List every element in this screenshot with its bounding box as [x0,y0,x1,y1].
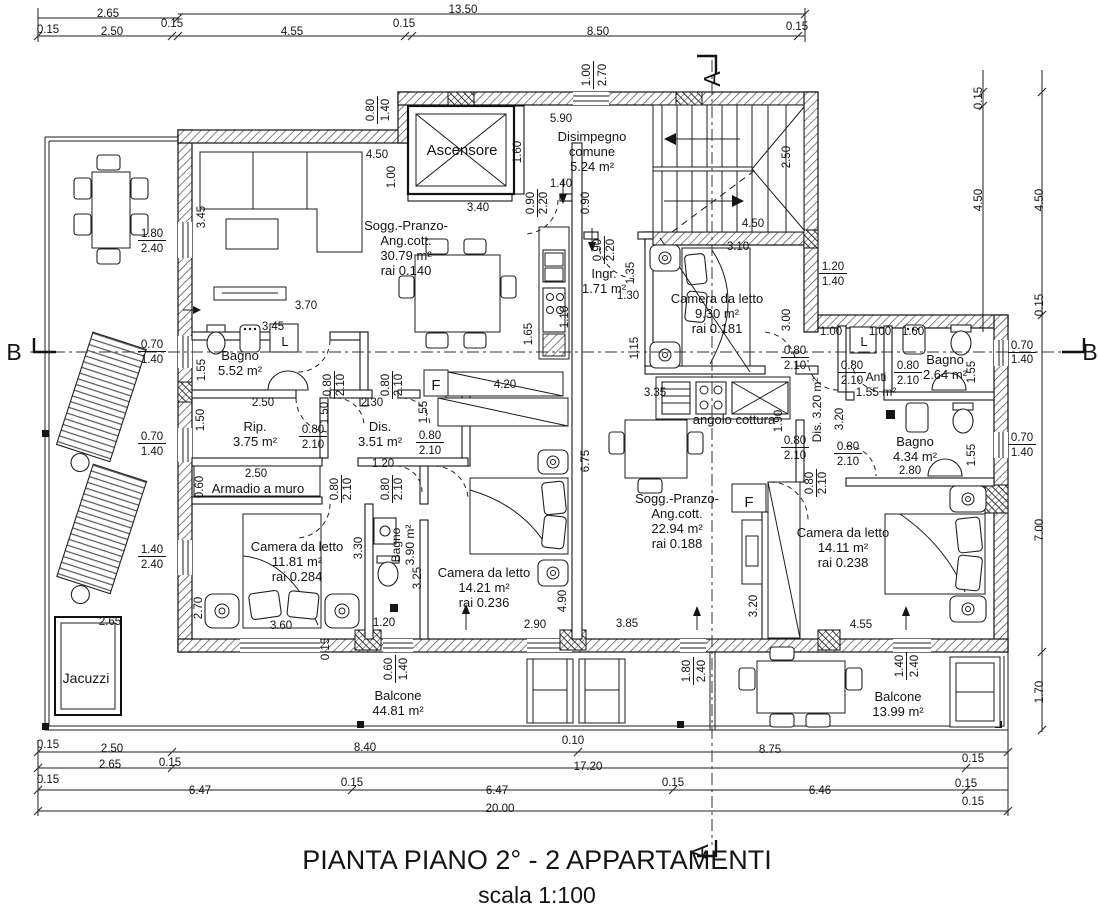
dimension-text: 2.10 [342,478,354,500]
dimension-label: 2.20 [605,239,617,261]
dimension-label: 1.70 [1034,681,1046,703]
dimension-label: 1.40 [141,446,163,458]
dimension-label: 1.00 [869,326,891,338]
dimension-label: 4.50 [366,149,388,161]
room-label-line: rai 0.181 [692,321,743,336]
room-label-line: Ang.cott. [651,506,702,521]
dimension-text: 0.80 [784,345,806,357]
dimension-label: 1.40 [550,178,572,190]
dimension-label: 3.85 [616,618,638,630]
dimension-text: 1.00 [386,166,398,188]
dimension-label: 0.80 [329,475,342,503]
dimension-label: 4.50 [973,189,985,211]
dimension-text: 0.60 [383,658,395,680]
dimension-text: 0.80 [322,374,334,396]
dimension-label: 0.80 [380,475,393,503]
dimension-label: 0.70 [138,339,166,352]
label-frigo-apt2: F [744,494,753,511]
dimension-label: 0.15 [320,638,332,660]
dimension-label: 1.00 [581,61,594,89]
dimension-text: 1.40 [141,354,163,366]
dimension-text: 2.90 [524,619,546,631]
dimension-text: 0.60 [194,476,206,498]
dimension-label: 1.40 [1011,354,1033,366]
dimension-text: 3.25 [412,567,424,589]
dimension-text: 2.40 [141,243,163,255]
dimension-label: 2.50 [245,468,267,480]
dimension-label: 2.40 [141,243,163,255]
dimension-text: 2.50 [101,743,123,755]
dimension-label: 2.10 [897,375,919,387]
dimension-label: 2.40 [909,655,921,677]
dimension-label: 6.46 [809,785,831,797]
dimension-label: 2.70 [193,597,205,619]
dimension-text: 3.85 [616,618,638,630]
section-marker-letter: B [6,339,21,365]
dimension-text: 0.15 [393,18,415,30]
room-label-line: 3.51 m² [358,434,403,449]
dimension-label: 3.20 [834,408,846,430]
dimension-text: 2.10 [784,450,806,462]
dimension-text: 0.80 [365,99,377,121]
dimension-label: 1.40 [138,544,166,557]
dimension-label: 2.10 [419,445,441,457]
room-label-line: 14.11 m² [818,540,869,555]
dimension-label: 3.45 [196,206,208,228]
dimension-text: 0.80 [419,430,441,442]
room-label-line: Sogg.-Pranzo- [364,218,448,233]
dimension-label: 2.10 [335,374,347,396]
dimension-label: 2.10 [817,472,829,494]
dimension-label: 1.55 [418,401,430,423]
dimension-label: 0.15 [1034,294,1046,316]
dimension-label: 1.50 [319,402,331,424]
dimension-text: 0.15 [973,87,985,109]
dimension-text: 0.90 [525,192,537,214]
dimension-text: 3.45 [196,206,208,228]
dimension-label: 2.10 [393,374,405,396]
dimension-label: 3.00 [781,309,793,331]
dimension-text: 1.80 [141,228,163,240]
room-label-line: L [281,334,288,349]
room-bagno-264: Bagno2.64 m² [923,352,968,382]
dimension-label: 1.15 [629,337,641,359]
dimension-label: 1.80 [138,228,166,241]
dimension-label: 0.15 [159,757,181,769]
dimension-label: 2.10 [302,439,324,451]
dimension-text: 1.15 [629,337,641,359]
dimension-label: 1.40 [398,658,410,680]
dimension-text: 4.50 [1034,189,1046,211]
room-label-line: 44.81 m² [372,703,424,718]
dimension-text: 1.50 [319,402,331,424]
dimension-text: 1.40 [1011,354,1033,366]
dimension-label: 1.40 [1011,447,1033,459]
dimension-text: 1.40 [141,544,163,556]
dimension-text: 1.00 [869,326,891,338]
dimension-text: 1.20 [373,617,395,629]
room-label-line: rai 0.238 [818,555,869,570]
dimension-label: 0.15 [37,24,59,36]
dimension-label: 2.40 [141,559,163,571]
section-marker-letter: B [1082,339,1097,365]
dimension-label: 8.75 [759,744,781,756]
label-lavatrice-apt1: L [281,334,288,349]
room-label-line: Bagno [221,348,259,363]
room-label-line: Bagno [896,434,934,449]
dimension-text: 0.15 [37,739,59,751]
room-label-line: Anti [866,370,887,384]
room-label-line: 2.64 m² [923,367,968,382]
dimension-label: 1.20 [373,617,395,629]
room-label-line: Bagno [389,527,403,562]
dimension-label: 0.90 [580,192,592,214]
dimension-label: 0.70 [138,431,166,444]
room-label-line: 11.81 m² [272,554,323,569]
room-bagno-552: Bagno5.52 m² [218,348,263,378]
dimension-text: 0.15 [161,18,183,30]
dimension-text: 2.40 [696,660,708,682]
dimension-label: 2.50 [252,397,274,409]
dimension-text: 1.55 [966,444,978,466]
dimension-label: 2.50 [101,26,123,38]
dimension-label: 0.80 [834,441,862,454]
dimension-text: 0.15 [962,753,984,765]
room-label-line: 5.52 m² [218,363,263,378]
dimension-label: 1.20 [372,458,394,470]
dimension-text: 2.80 [899,465,921,477]
dimension-text: 1.40 [398,658,410,680]
dimension-text: 2.10 [393,478,405,500]
dimension-label: 1.40 [894,652,907,680]
dimension-text: 8.50 [587,26,609,38]
dimension-label: 0.60 [383,655,396,683]
dimension-text: 1.20 [372,458,394,470]
dimension-text: 3.10 [727,241,749,253]
dimension-text: 1.40 [822,276,844,288]
room-label-line: 13.99 m² [872,704,924,719]
dimension-text: 1.10 [559,306,571,328]
dimension-label: 0.80 [838,360,866,373]
dimension-text: 1.70 [1034,681,1046,703]
dimension-label: 2.10 [784,360,806,372]
room-label-line: 1.71 m² [582,281,627,296]
room-label-line: rai 0.140 [381,263,432,278]
dimension-text: 1.65 [523,323,535,345]
label-lavatrice-apt2: L [860,334,867,349]
dimension-label: 0.80 [781,345,809,358]
room-label-line: 30.79 m² [380,248,432,263]
dimension-label: 1.65 [523,323,535,345]
dimension-label: 2.50 [101,743,123,755]
room-jacuzzi: Jacuzzi [63,670,110,686]
room-label-line: Sogg.-Pranzo- [635,491,719,506]
dimension-label: 0.80 [894,360,922,373]
dimension-text: 0.70 [141,339,163,351]
dimension-label: 0.15 [662,777,684,789]
dimension-label: 0.15 [962,753,984,765]
dimension-label: 3.25 [412,567,424,589]
dimension-label: 1.60 [902,326,924,338]
dimension-text: 1.00 [820,326,842,338]
dimension-text: 4.90 [557,590,569,612]
dimension-text: 2.65 [99,759,121,771]
dimension-label: 0.80 [781,435,809,448]
dimension-text: 17.20 [574,761,603,773]
room-dis-320: Dis. 3.20 m² [810,378,824,443]
dimension-text: 1.55 [966,361,978,383]
room-camera-1411: Camera da letto14.11 m²rai 0.238 [797,525,890,570]
dimension-label: 2.30 [361,397,383,409]
dimension-label: 1.20 [819,261,847,274]
dimension-label: 2.80 [899,465,921,477]
room-ascensore: Ascensore [427,142,498,159]
dimension-text: 0.80 [841,360,863,372]
dimension-label: 8.40 [354,742,376,754]
room-label-line: rai 0.284 [272,569,323,584]
room-label-line: F [431,377,440,394]
dimension-label: 6.47 [486,785,508,797]
room-label-line: Camera da letto [438,565,531,580]
dimension-text: 1.20 [822,261,844,273]
dimension-text: 4.55 [850,619,872,631]
dimension-text: 3.40 [467,202,489,214]
dimension-label: 0.80 [380,371,393,399]
room-label-line: rai 0.236 [459,595,510,610]
dimension-text: 3.70 [295,300,317,312]
room-label-line: 4.34 m² [893,449,938,464]
dimension-text: 2.65 [97,8,119,20]
room-label-line: Ang.cott. [380,233,431,248]
dimension-text: 4.50 [973,189,985,211]
dimension-label: 2.10 [784,450,806,462]
dimension-label: 0.15 [393,18,415,30]
dimension-text: 1.35 [625,262,637,284]
dimension-text: 4.50 [366,149,388,161]
dimension-text: 3.35 [644,387,666,399]
room-label-line: Camera da letto [671,291,764,306]
room-balcone-4481: Balcone44.81 m² [372,688,424,718]
dimension-label: 1.10 [559,306,571,328]
dimension-label: 1.00 [820,326,842,338]
dimension-text: 4.20 [494,379,516,391]
dimension-text: 0.15 [662,777,684,789]
room-rip: Rip.3.75 m² [233,419,278,449]
room-balcone-1399: Balcone13.99 m² [872,689,924,719]
room-label-line: F [744,494,753,511]
dimension-label: 0.90 [525,189,538,217]
dimension-label: 0.60 [194,476,206,498]
room-label-line: Armadio a muro [212,481,304,496]
room-label-line: L [860,334,867,349]
dimension-text: 0.70 [141,431,163,443]
dimension-label: 0.15 [973,87,985,109]
dimension-text: 1.40 [380,99,392,121]
dimension-text: 2.30 [361,397,383,409]
dimension-label: 4.20 [494,379,516,391]
room-label-line: 3.75 m² [233,434,278,449]
dimension-label: 0.15 [341,777,363,789]
dimension-text: 2.70 [597,64,609,86]
dimension-text: 0.15 [962,796,984,808]
room-label-line: 1.55 m² [856,385,897,399]
dimension-text: 0.15 [320,638,332,660]
room-label-line: Balcone [375,688,422,703]
section-marker-b: B [6,339,21,365]
dimension-text: 6.47 [486,785,508,797]
dimension-text: 1.60 [902,326,924,338]
kitchen-apt1 [539,227,569,359]
dimension-text: 1.55 [418,401,430,423]
dimension-label: 1.00 [386,166,398,188]
room-camera-1421: Camera da letto14.21 m²rai 0.236 [438,565,531,610]
dimension-label: 1.60 [512,141,524,163]
dimension-text: 2.40 [909,655,921,677]
section-marker-a: A [699,71,725,87]
dimension-label: 5.90 [550,113,572,125]
dimension-text: 3.00 [781,309,793,331]
dimension-label: 8.50 [587,26,609,38]
dimension-text: 2.65 [99,616,121,628]
room-label-line: comune [569,144,615,159]
room-bagno-390: Bagno3.90 m² [389,525,417,566]
dimension-text: 2.50 [252,397,274,409]
dimension-text: 0.15 [955,778,977,790]
dimension-text: 2.20 [605,239,617,261]
dimension-label: 2.70 [597,64,609,86]
dimension-label: 0.80 [416,430,444,443]
dimension-text: 8.40 [354,742,376,754]
dimension-label: 2.10 [342,478,354,500]
dimension-text: 0.80 [380,478,392,500]
dimension-text: 6.46 [809,785,831,797]
dimension-text: 2.70 [193,597,205,619]
dimension-label: 1.55 [966,361,978,383]
dimension-label: 3.70 [295,300,317,312]
dimension-label: 0.80 [299,424,327,437]
dimension-text: 0.80 [804,472,816,494]
dimension-text: 1.55 [196,359,208,381]
dimension-text: 1.50 [195,409,207,431]
section-marker-letter: A [699,71,725,87]
dimension-text: 3.20 [834,408,846,430]
dimension-label: 2.40 [696,660,708,682]
dimension-label: 17.20 [574,761,603,773]
dimension-text: 0.80 [302,424,324,436]
dimension-text: 3.45 [262,321,284,333]
dimension-label: 13.50 [449,4,478,16]
room-label-line: angolo cottura [693,412,776,427]
dimension-text: 1.80 [681,660,693,682]
dimension-text: 0.70 [1011,340,1033,352]
dimension-text: 3.20 [748,595,760,617]
dimension-text: 0.80 [784,435,806,447]
dimension-label: 3.10 [727,241,749,253]
dimension-text: 0.90 [592,239,604,261]
room-label-line: Jacuzzi [63,670,110,686]
room-label-line: 5.24 m² [570,159,615,174]
dimension-text: 2.10 [817,472,829,494]
dimension-text: 0.80 [897,360,919,372]
dimension-text: 1.40 [894,655,906,677]
dimension-label: 1.80 [681,657,694,685]
dimension-text: 0.80 [329,478,341,500]
dimension-label: 0.10 [562,735,584,747]
room-disimpegno-comune: Disimpegnocomune5.24 m² [558,129,627,174]
dimension-text: 2.50 [245,468,267,480]
label-frigo-apt1: F [431,377,440,394]
drawing-title: PIANTA PIANO 2° - 2 APPARTAMENTI [302,845,771,875]
room-label-line: 3.90 m² [403,525,417,566]
dimension-label: 3.45 [262,321,284,333]
dimension-label: 7.00 [1034,519,1046,541]
dimension-label: 0.15 [962,796,984,808]
floor-plan-page: 2.6513.500.152.500.154.550.158.500.151.0… [0,0,1098,914]
dimension-text: 7.00 [1034,519,1046,541]
section-marker-b: B [1082,339,1097,365]
dimension-text: 1.40 [550,178,572,190]
dimension-text: 0.15 [37,774,59,786]
dimension-text: 2.50 [101,26,123,38]
dimension-text: 13.50 [449,4,478,16]
dimension-label: 6.47 [189,785,211,797]
dimension-label: 0.80 [804,469,817,497]
dimension-text: 2.10 [837,456,859,468]
room-label-line: Bagno [926,352,964,367]
dimension-label: 1.55 [966,444,978,466]
room-label-line: Disimpegno [558,129,627,144]
room-label-line: 14.21 m² [458,580,510,595]
room-ingresso: Ingr.1.71 m² [582,266,627,296]
dimension-text: 2.10 [419,445,441,457]
dimension-text: 1.40 [141,446,163,458]
dimension-text: 0.15 [786,21,808,33]
dimension-label: 0.80 [322,371,335,399]
room-label-line: Camera da letto [797,525,890,540]
dimension-text: 0.90 [580,192,592,214]
dimension-label: 1.40 [822,276,844,288]
dimension-label: 3.60 [270,620,292,632]
dimension-label: 0.15 [37,774,59,786]
dimension-label: 0.70 [1008,340,1036,353]
room-label-line: 22.94 m² [651,521,703,536]
dimension-label: 2.90 [524,619,546,631]
room-label-line: rai 0.188 [652,536,703,551]
dimension-label: 4.50 [1034,189,1046,211]
dimension-label: 2.65 [99,616,121,628]
dimension-text: 3.60 [270,620,292,632]
dimension-label: 2.65 [97,8,119,20]
dimension-label: 2.10 [393,478,405,500]
dimension-text: 2.10 [302,439,324,451]
dimension-text: 0.15 [341,777,363,789]
dimension-text: 2.10 [335,374,347,396]
dimension-text: 6.75 [580,450,592,472]
dimension-label: 1.35 [625,262,637,284]
room-label-line: Camera da letto [251,539,344,554]
dimension-label: 2.20 [538,192,550,214]
room-label-line: Dis. 3.20 m² [810,378,824,443]
dimension-label: 0.70 [1008,432,1036,445]
drawing-scale: scala 1:100 [478,882,596,908]
dimension-text: 3.30 [353,537,365,559]
dimension-label: 0.15 [37,739,59,751]
dimension-label: 2.10 [837,456,859,468]
dimension-text: 0.15 [159,757,181,769]
dimension-text: 20.00 [486,803,515,815]
dimension-text: 0.70 [1011,432,1033,444]
floor-plan-canvas: 2.6513.500.152.500.154.550.158.500.151.0… [0,0,1098,914]
